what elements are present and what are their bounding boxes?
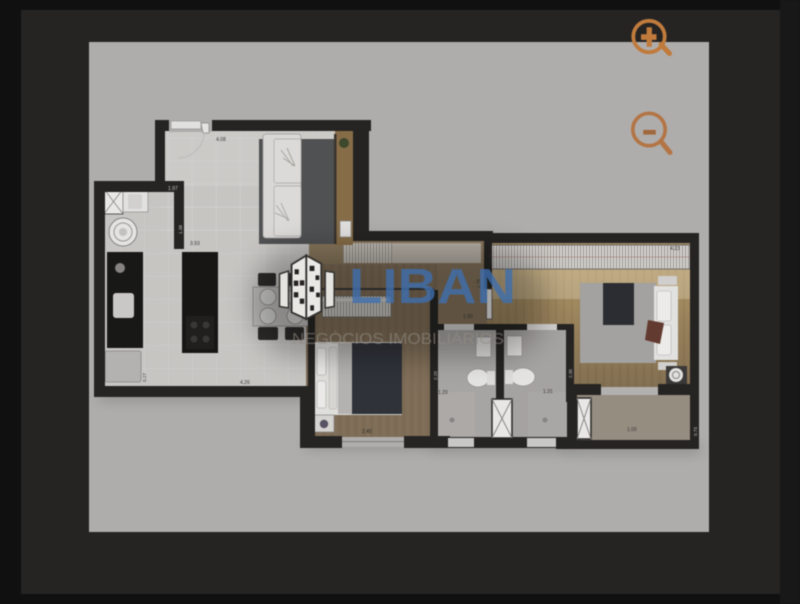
svg-text:NEGÓCIOS IMOBILIÁRIOS: NEGÓCIOS IMOBILIÁRIOS: [292, 331, 504, 348]
svg-text:LIBAN: LIBAN: [349, 259, 516, 314]
